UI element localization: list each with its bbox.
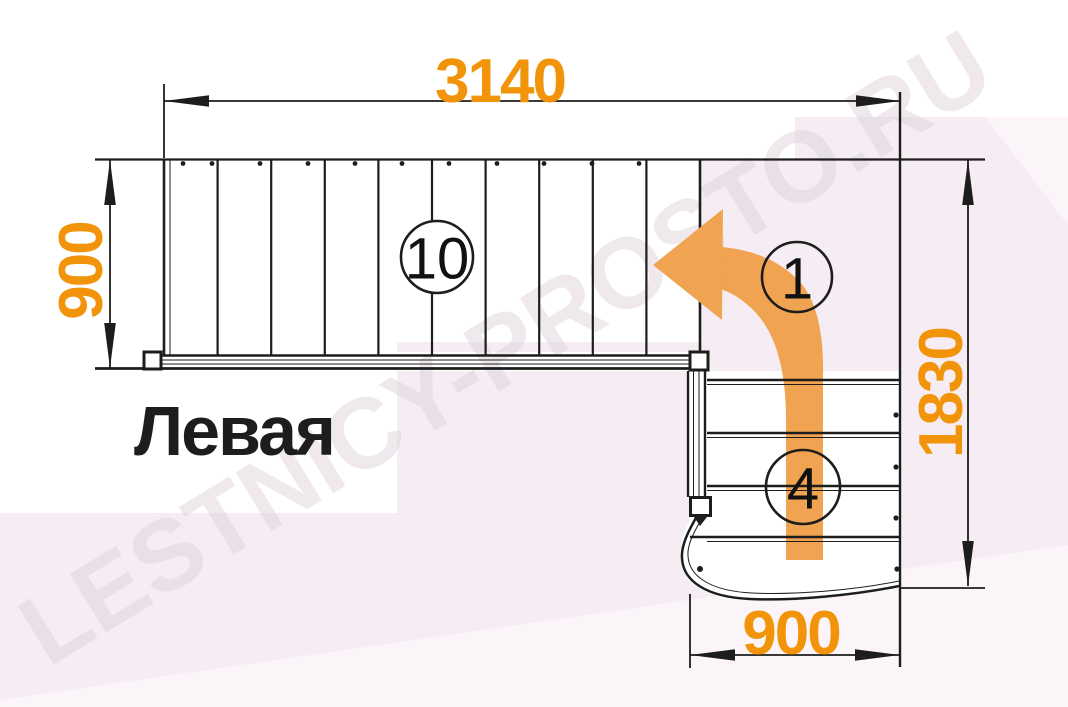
dimension-left-width: 900: [51, 171, 113, 371]
dimension-top-length: 3140: [400, 51, 600, 113]
marker-4-label: 4: [787, 457, 819, 522]
newel-post-left: [144, 352, 161, 369]
dimension-bottom-width: 900: [691, 603, 891, 665]
newel-post-lower: [691, 498, 711, 516]
newel-post-corner: [690, 352, 708, 370]
dimension-right-depth: 1830: [911, 293, 973, 493]
plan-title: Левая: [134, 396, 334, 466]
marker-1-label: 1: [781, 247, 813, 312]
marker-10-label: 10: [405, 227, 470, 292]
staircase-plan-diagram: LESTNICY-PROSTO.RU: [0, 0, 1068, 707]
